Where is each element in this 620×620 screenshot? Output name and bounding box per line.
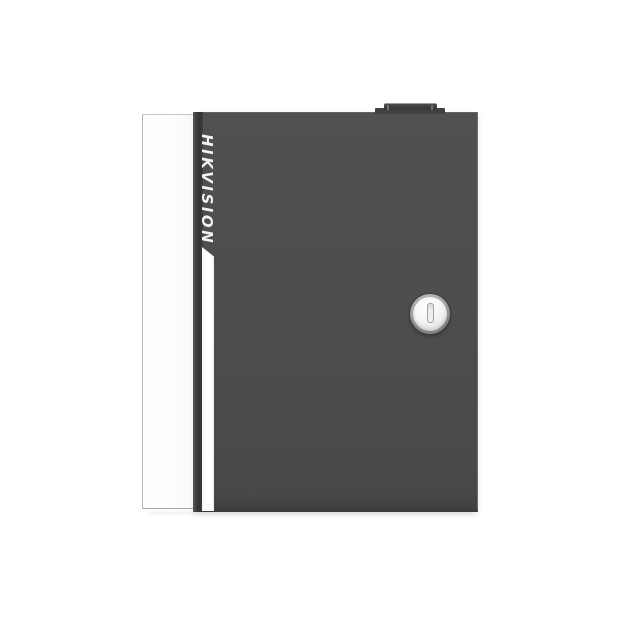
product-photo: HIKVISION: [0, 0, 620, 620]
ground-shadow: [150, 512, 472, 515]
top-knob: [384, 103, 437, 110]
keyhole-icon: [427, 303, 434, 323]
cabinet-side-panel: [142, 114, 193, 509]
knob-highlight: [431, 105, 433, 110]
lock-face: [413, 297, 447, 331]
key-lock: [410, 294, 450, 334]
knob-highlight: [387, 105, 389, 110]
accent-stripe: [202, 247, 214, 511]
brand-logo: HIKVISION: [198, 134, 215, 246]
